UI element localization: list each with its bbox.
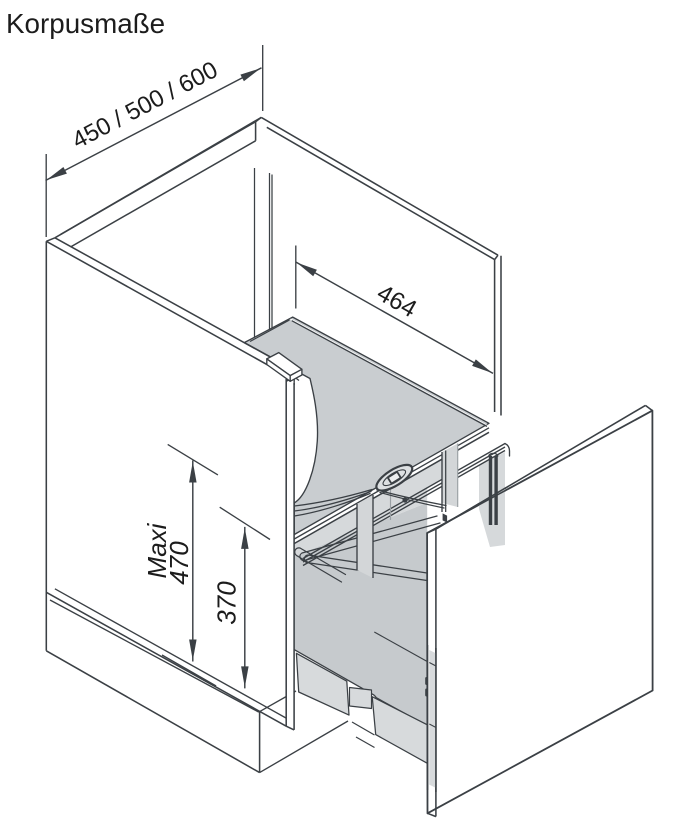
svg-text:470: 470 [164,541,194,585]
svg-text:Korpusmaße: Korpusmaße [6,8,165,39]
svg-text:370: 370 [212,581,242,625]
